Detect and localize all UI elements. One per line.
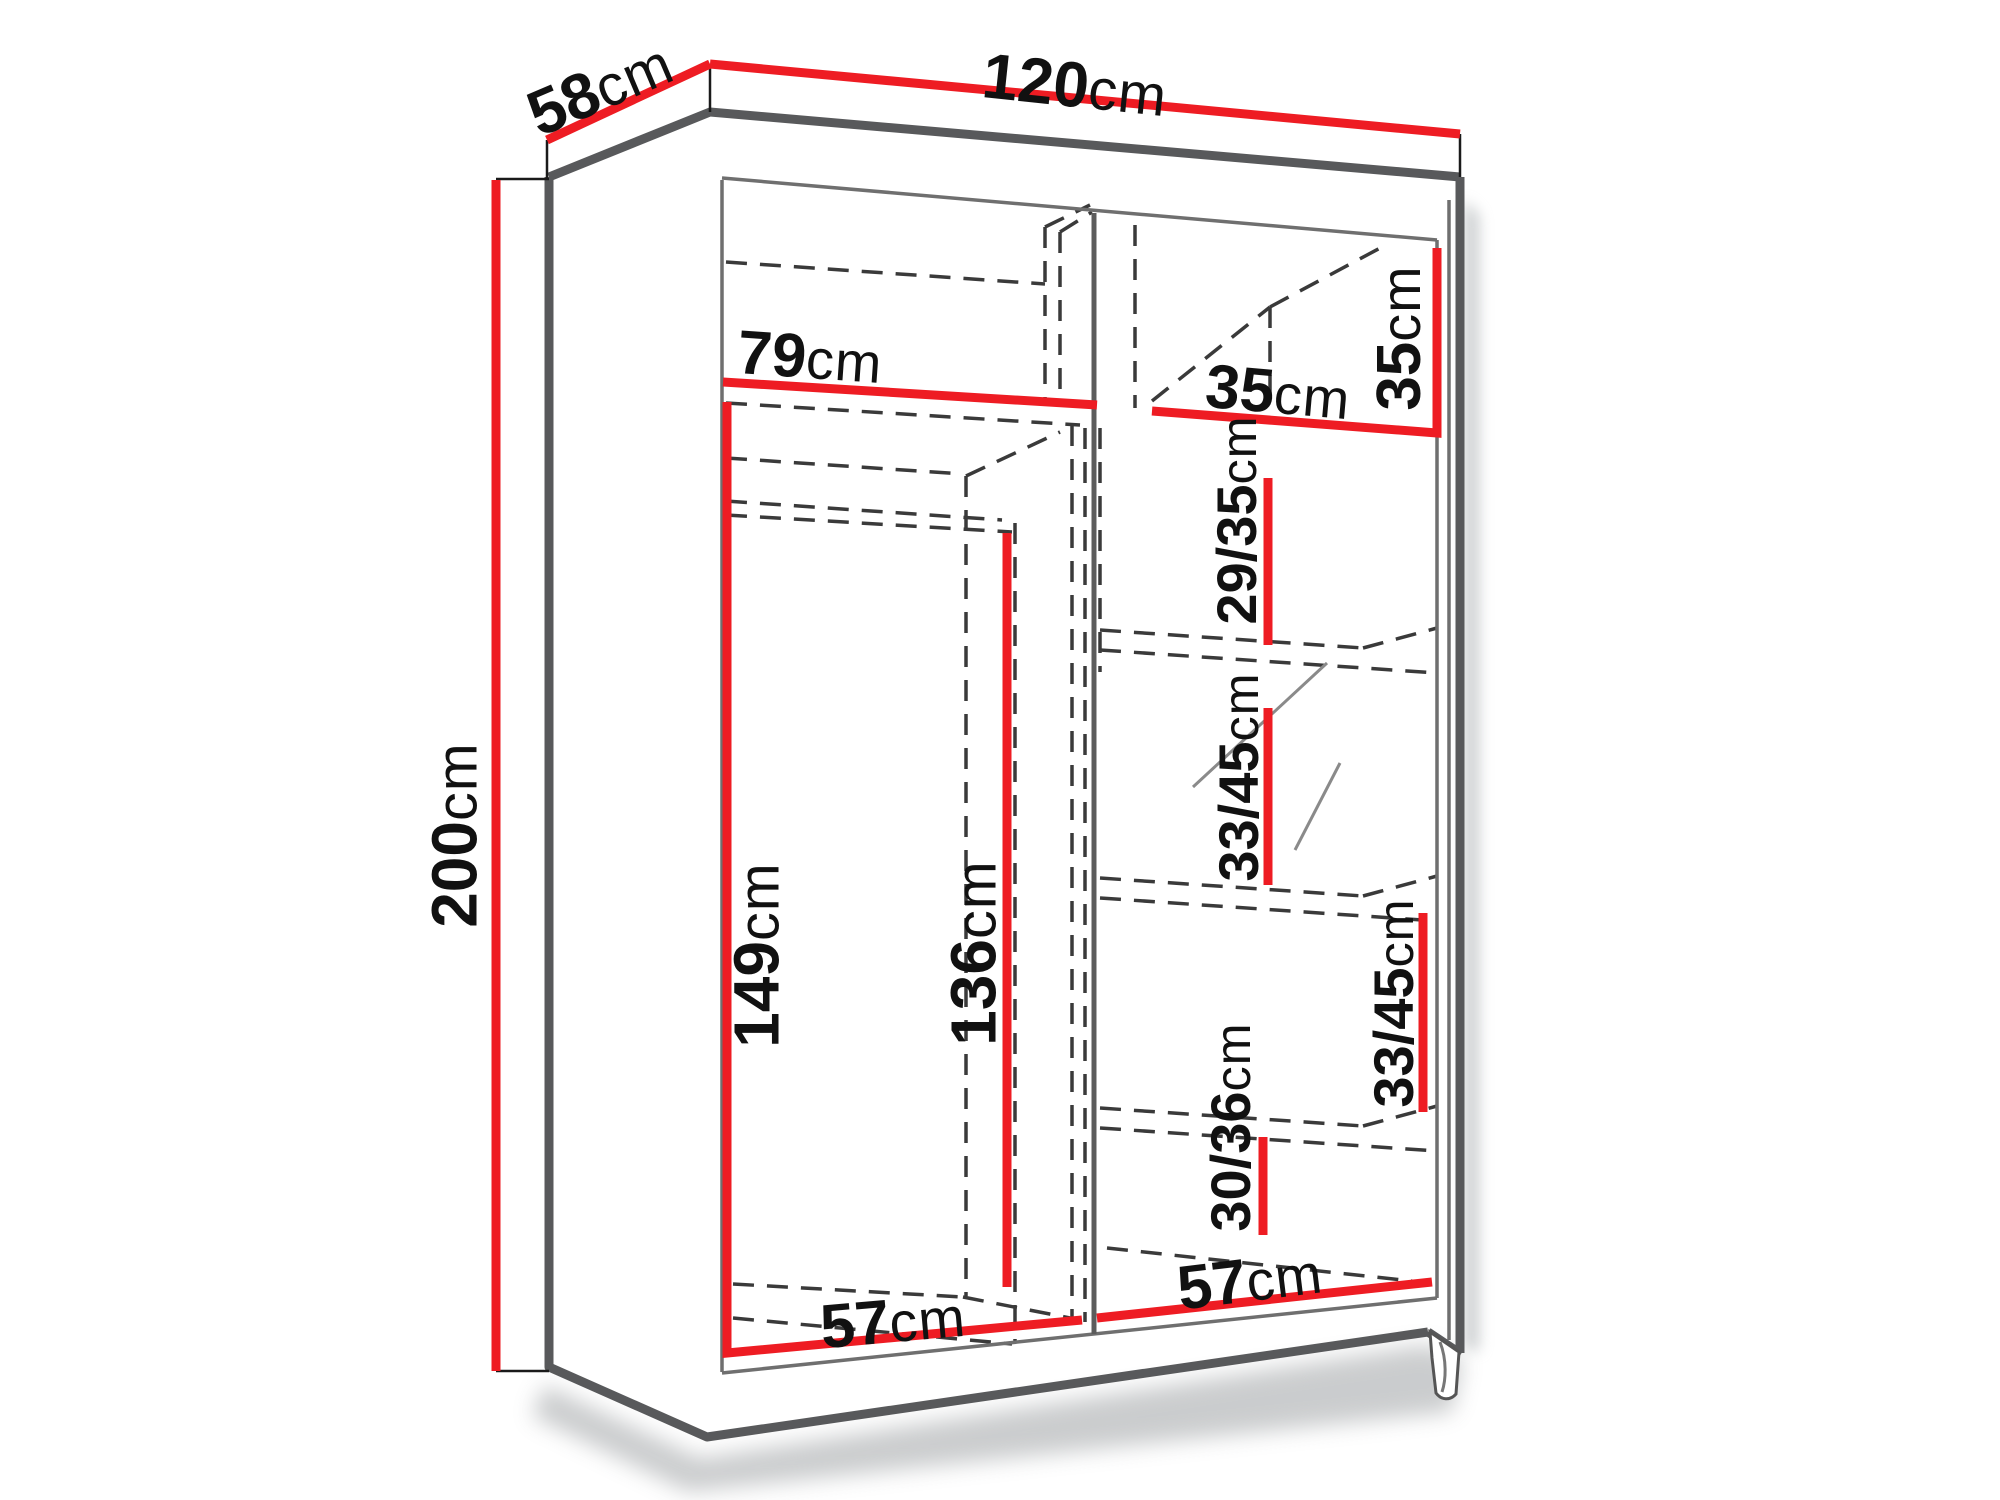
dimension-lines [496,64,1460,1371]
dim-left-floor-width-label: 57cm [818,1285,968,1359]
dim-right-shelf-2-label: 33/45cm [1211,672,1267,881]
dim-top-shelf-height-label: 35cm [1369,265,1431,410]
dim-left-inner-height-label: 136cm [942,860,1007,1046]
dim-left-section-height-label: 149cm [725,862,790,1048]
dim-right-shelf-4-label: 30/36cm [1203,1022,1259,1231]
wardrobe-foot [1430,1332,1459,1399]
witness-lines [496,64,1460,1371]
dim-height-label: 200cm [423,742,488,928]
diagram-canvas [0,0,2000,1500]
dim-right-shelf-3-label: 33/45cm [1366,898,1422,1107]
dim-left-top-shelf-width-label: 79cm [735,322,884,394]
wardrobe-dimension-diagram: 58cm 120cm 200cm 79cm 35cm 35cm 29/35cm … [0,0,2000,1500]
dim-right-shelf-1-label: 29/35cm [1209,415,1265,624]
